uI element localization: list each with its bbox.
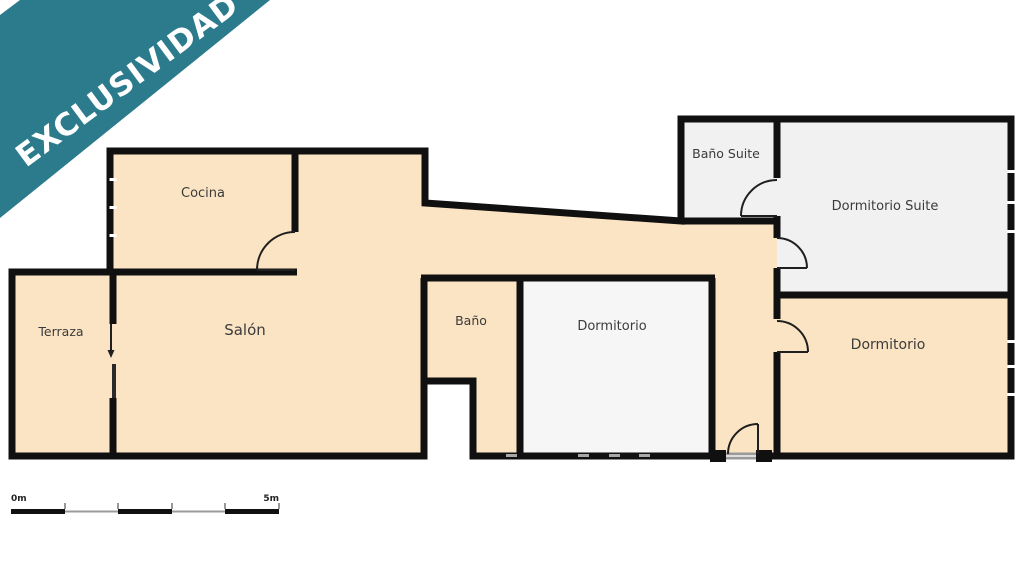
scale-segment-2 <box>65 511 118 513</box>
scale-label-end: 5m <box>263 494 279 504</box>
scale-segment-5 <box>225 509 279 514</box>
room-dormitorio-floor <box>520 278 712 456</box>
scale-label-start: 0m <box>11 494 27 504</box>
room-label-cocina: Cocina <box>181 186 225 201</box>
entrance-threshold-inner <box>726 455 756 457</box>
room-label-bano: Baño <box>455 313 487 328</box>
floorplan-page: Cocina Terraza Salón Baño Dormitorio Bañ… <box>0 0 1024 576</box>
scale-segment-3 <box>118 509 172 514</box>
scale-segment-4 <box>172 511 225 513</box>
entrance-post-left <box>710 450 726 462</box>
scale-bar: 0m 5m <box>11 494 279 514</box>
room-label-salon: Salón <box>224 321 266 339</box>
room-label-dormitorio: Dormitorio <box>577 319 646 334</box>
room-label-dormitorio-2: Dormitorio <box>851 337 926 353</box>
room-label-dormitorio-suite: Dormitorio Suite <box>832 199 939 214</box>
scale-ticks <box>65 503 279 509</box>
scale-segment-1 <box>11 509 65 514</box>
room-bano-suite-floor <box>681 119 777 221</box>
room-label-bano-suite: Baño Suite <box>692 146 760 161</box>
floorplan-svg: Cocina Terraza Salón Baño Dormitorio Bañ… <box>0 0 1024 576</box>
room-label-terraza: Terraza <box>37 324 83 339</box>
